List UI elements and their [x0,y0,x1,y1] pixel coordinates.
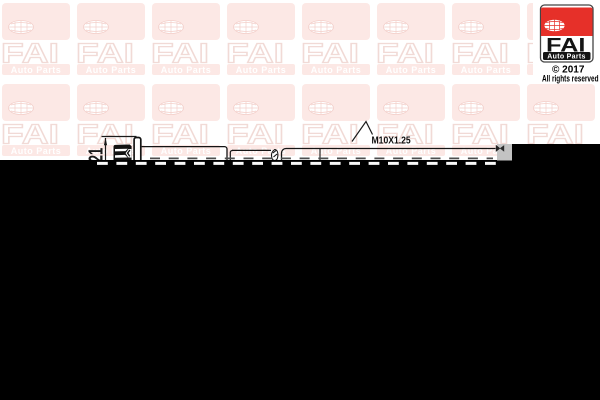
svg-text:M10X1.25: M10X1.25 [372,135,412,147]
svg-text:Auto Parts: Auto Parts [547,54,585,61]
svg-text:All rights reserved: All rights reserved [542,73,599,83]
